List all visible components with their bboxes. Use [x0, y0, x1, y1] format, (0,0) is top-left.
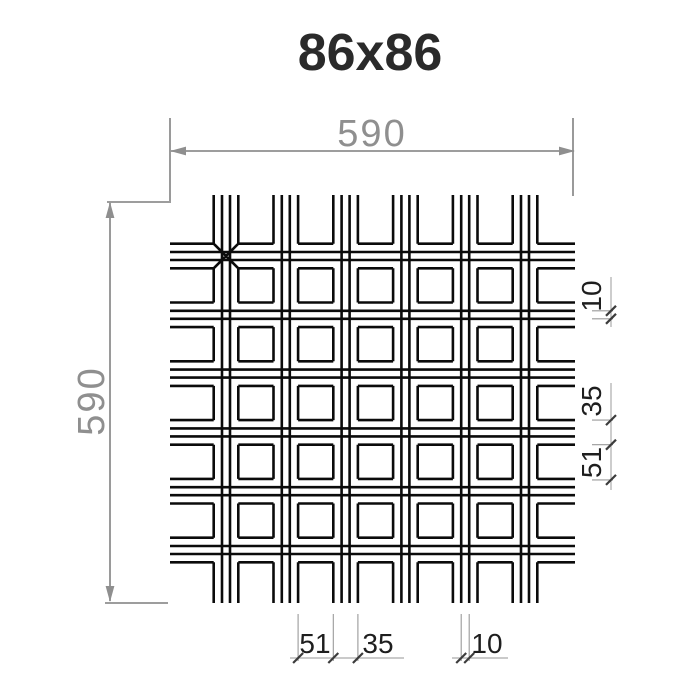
- dimension-right-51-label: 51: [576, 447, 607, 478]
- lattice-lines: [170, 195, 575, 603]
- dimension-bottom-blade-width: 10: [452, 614, 508, 663]
- dimension-bottom-35-label: 35: [362, 628, 393, 659]
- dimension-left-overall-height: 590: [71, 202, 171, 603]
- arrowhead-up-icon: [106, 202, 115, 218]
- dimension-top-overall-width: 590: [170, 113, 575, 201]
- dimension-right-web-and-opening: 35 51: [576, 383, 616, 490]
- arrowhead-down-icon: [106, 586, 115, 602]
- dimension-top-label: 590: [337, 113, 406, 155]
- dimension-right-10-label: 10: [576, 280, 607, 311]
- dimension-bottom-opening-and-web: 51 35: [290, 614, 404, 663]
- dimension-right-blade-width: 10: [576, 277, 616, 327]
- dimension-bottom-51-label: 51: [299, 628, 330, 659]
- drawing-page: 86x86 590 590 10 35 51: [0, 0, 700, 700]
- technical-drawing-canvas: 86x86 590 590 10 35 51: [0, 0, 700, 700]
- grid-lattice-pattern: [170, 195, 575, 603]
- drawing-title: 86x86: [298, 24, 443, 82]
- dimension-bottom-10-label: 10: [471, 628, 502, 659]
- arrowhead-left-icon: [170, 147, 186, 156]
- dimension-right-35-label: 35: [576, 385, 607, 416]
- dimension-left-label: 590: [71, 366, 113, 435]
